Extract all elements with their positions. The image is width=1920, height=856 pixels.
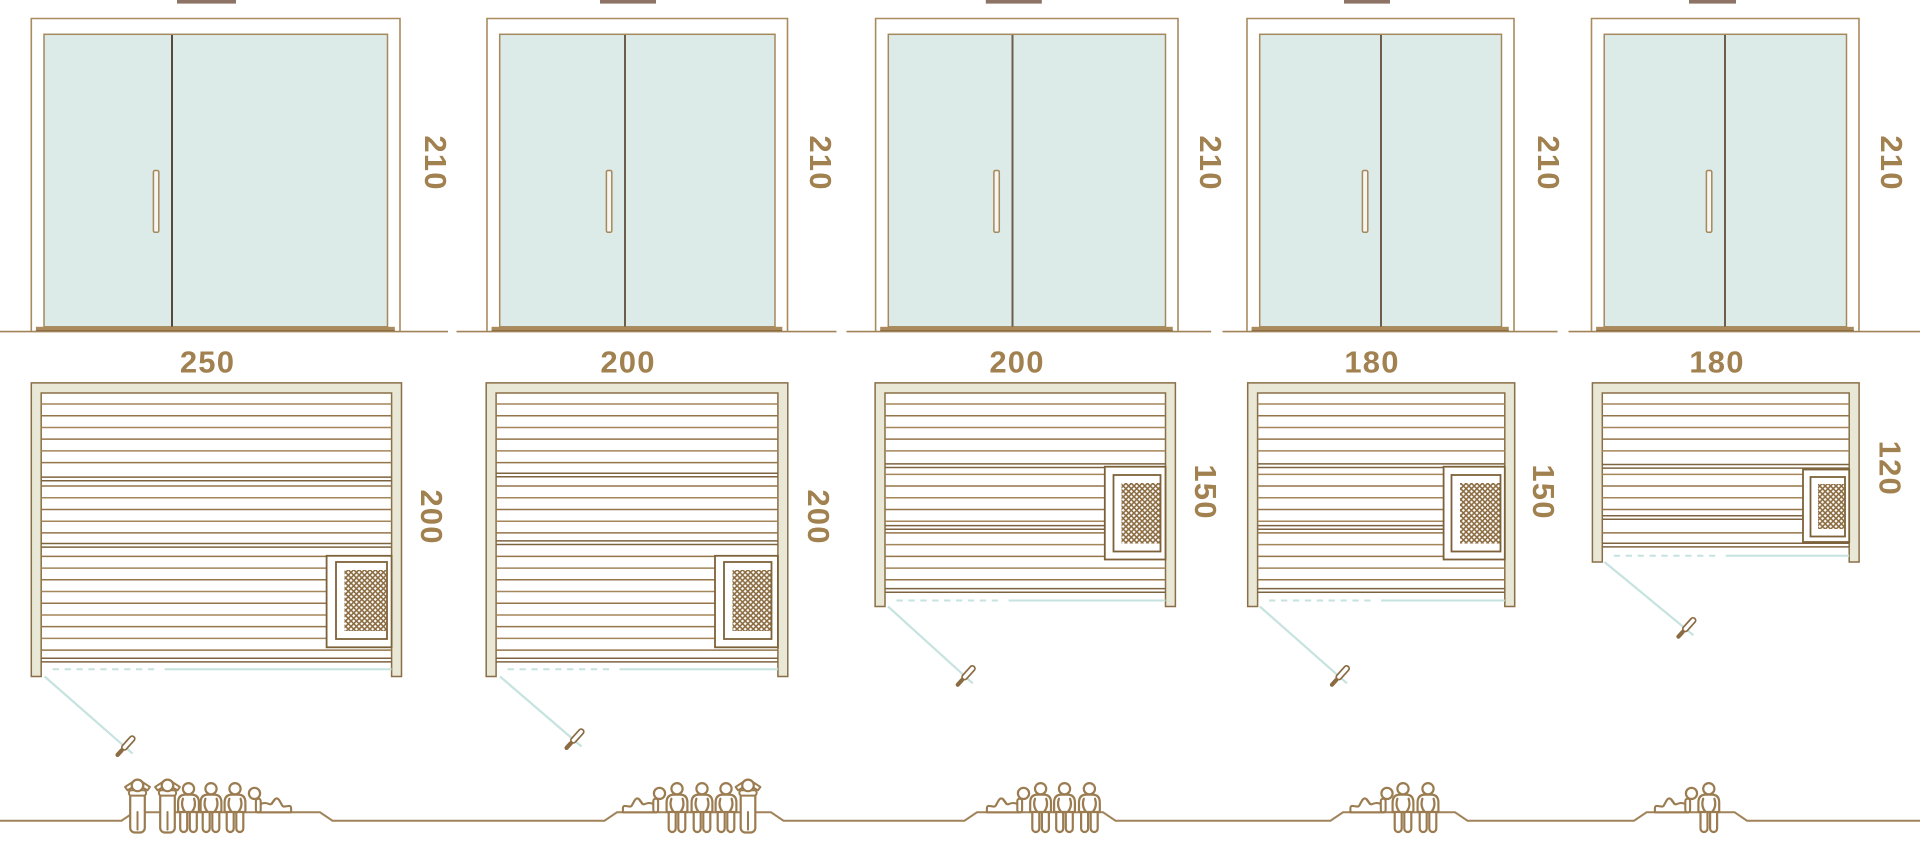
- svg-text:200: 200: [600, 345, 655, 380]
- svg-text:250: 250: [180, 345, 235, 380]
- svg-text:210: 210: [1874, 135, 1909, 190]
- svg-text:150: 150: [1188, 464, 1223, 519]
- svg-text:210: 210: [1531, 135, 1566, 190]
- svg-text:180: 180: [1689, 345, 1744, 380]
- svg-text:200: 200: [414, 489, 449, 544]
- svg-text:200: 200: [989, 345, 1044, 380]
- svg-text:210: 210: [1193, 135, 1228, 190]
- svg-text:200: 200: [801, 489, 836, 544]
- svg-text:180: 180: [1344, 345, 1399, 380]
- svg-text:210: 210: [803, 135, 838, 190]
- svg-text:210: 210: [418, 135, 453, 190]
- svg-text:150: 150: [1526, 464, 1561, 519]
- svg-text:120: 120: [1873, 441, 1908, 496]
